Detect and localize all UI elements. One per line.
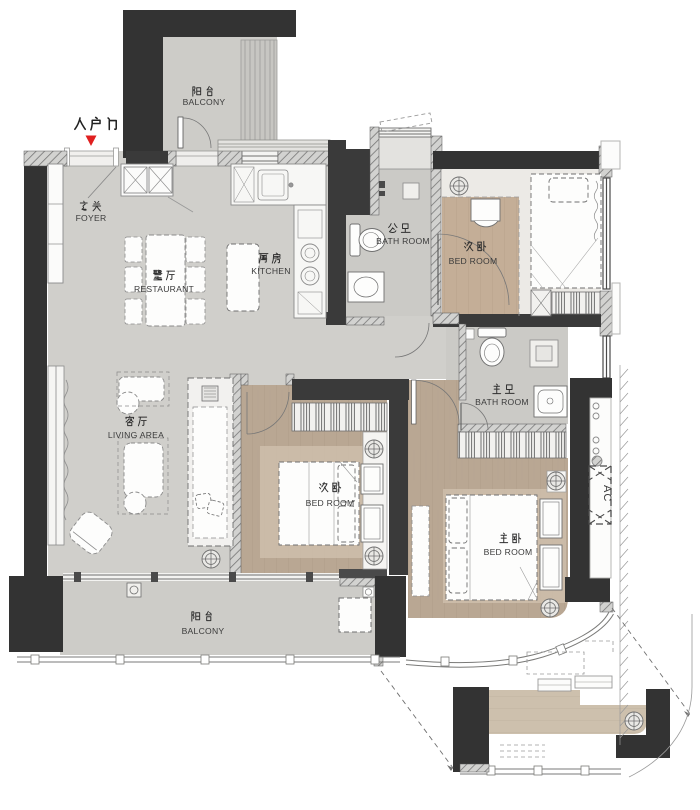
svg-text:RESTAURANT: RESTAURANT — [134, 284, 195, 294]
svg-text:BALCONY: BALCONY — [183, 97, 226, 107]
svg-text:BED ROOM: BED ROOM — [484, 547, 533, 557]
svg-text:AC: AC — [601, 485, 613, 502]
svg-text:KITCHEN: KITCHEN — [251, 266, 290, 276]
svg-text:BED ROOM: BED ROOM — [449, 256, 498, 266]
svg-text:BALCONY: BALCONY — [182, 626, 225, 636]
svg-text:BATH ROOM: BATH ROOM — [376, 236, 430, 246]
svg-text:BED ROOM: BED ROOM — [306, 498, 355, 508]
svg-text:BATH ROOM: BATH ROOM — [475, 397, 529, 407]
svg-text:LIVING AREA: LIVING AREA — [108, 430, 164, 440]
svg-text:FOYER: FOYER — [76, 213, 107, 223]
